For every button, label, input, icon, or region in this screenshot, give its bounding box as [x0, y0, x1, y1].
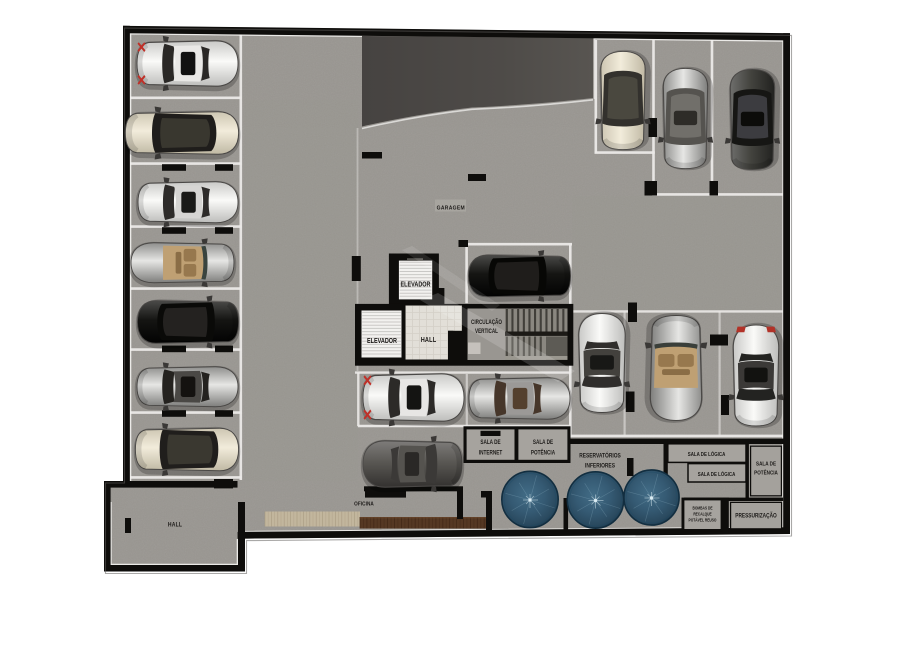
svg-text:INTERNET: INTERNET	[479, 450, 503, 457]
svg-text:PRESSURIZAÇÃO: PRESSURIZAÇÃO	[735, 512, 777, 520]
svg-text:CIRCULAÇÃO: CIRCULAÇÃO	[471, 318, 502, 326]
svg-text:SALA DE: SALA DE	[480, 440, 501, 447]
svg-text:POTÊNCIA: POTÊNCIA	[754, 468, 778, 477]
svg-text:ELEVADOR: ELEVADOR	[367, 337, 397, 345]
svg-text:SALA DE LÓGICA: SALA DE LÓGICA	[698, 469, 736, 478]
svg-text:INFERIORES: INFERIORES	[585, 463, 615, 470]
svg-text:OFICINA: OFICINA	[354, 501, 374, 508]
svg-text:POTÁVEL REUSO: POTÁVEL REUSO	[689, 517, 717, 523]
svg-text:RECALQUE: RECALQUE	[693, 512, 712, 516]
svg-text:SALA DE: SALA DE	[533, 440, 554, 447]
svg-text:ELEVADOR: ELEVADOR	[401, 281, 431, 289]
svg-text:RESERVATÓRIOS: RESERVATÓRIOS	[579, 451, 621, 460]
svg-text:VERTICAL: VERTICAL	[475, 328, 498, 335]
svg-text:HALL: HALL	[168, 522, 183, 529]
svg-text:GARAGEM: GARAGEM	[437, 205, 465, 211]
svg-text:SALA DE: SALA DE	[756, 461, 776, 468]
svg-text:HALL: HALL	[421, 336, 437, 344]
svg-text:POTÊNCIA: POTÊNCIA	[531, 448, 555, 457]
svg-text:BOMBAS DE: BOMBAS DE	[692, 506, 712, 510]
svg-text:SALA DE LÓGICA: SALA DE LÓGICA	[688, 449, 726, 458]
